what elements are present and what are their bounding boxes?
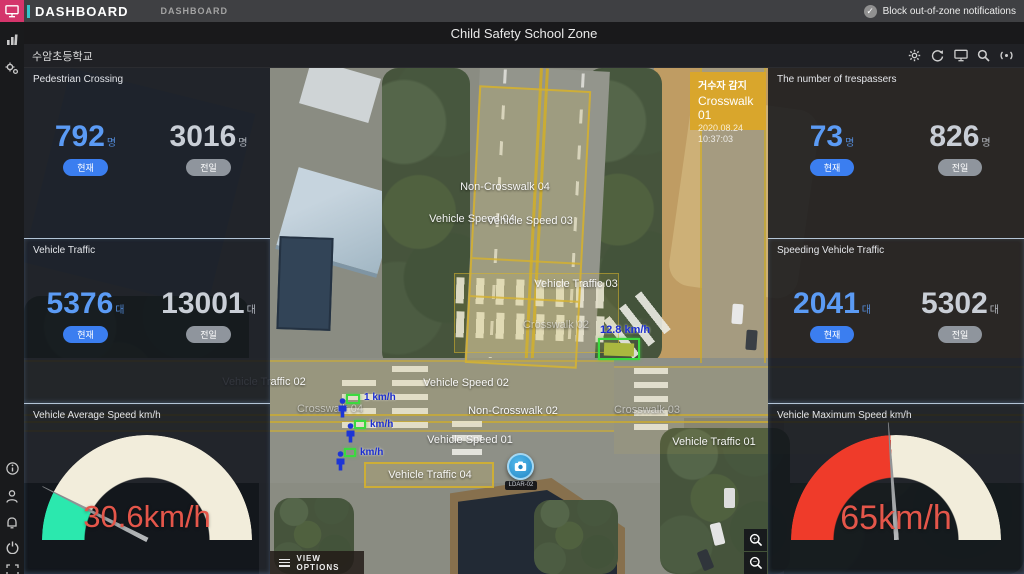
stat-value: 5302대 — [921, 288, 999, 320]
section-title: Vehicle Average Speed km/h — [24, 410, 270, 421]
zone-label: Vehicle Traffic 04 — [388, 469, 472, 481]
map-building — [299, 68, 381, 123]
stat-current: 2041대 현재 — [768, 288, 896, 343]
stat-previous: 13001대 전일 — [147, 288, 270, 343]
alert-time: 10:37:03 — [698, 134, 766, 144]
monitor-icon[interactable] — [0, 0, 24, 22]
menu-icon — [279, 559, 290, 567]
vehicle-detection-box — [598, 338, 640, 360]
camera-marker[interactable] — [507, 453, 534, 480]
previous-badge: 전일 — [186, 159, 231, 176]
check-icon[interactable]: ✓ — [864, 5, 877, 18]
gauge-value: 65km/h — [791, 499, 1001, 538]
zone-label: Vehicle Speed 01 — [427, 434, 513, 446]
view-options-button[interactable]: VIEW OPTIONS — [270, 551, 364, 574]
gauge-value: 30.6km/h — [42, 499, 252, 535]
stat-current: 5376대 현재 — [24, 288, 147, 343]
map-building-dark — [276, 236, 333, 331]
block-notifications-toggle[interactable]: ✓ Block out-of-zone notifications — [864, 5, 1016, 18]
bell-icon[interactable] — [0, 512, 24, 532]
stat-value: 3016명 — [170, 121, 248, 153]
speeding-traffic-section: Speeding Vehicle Traffic 2041대 현재 5302대 … — [768, 238, 1024, 403]
gears-icon[interactable] — [0, 58, 24, 78]
stat-value: 826명 — [929, 121, 990, 153]
vehicle-traffic-section: Vehicle Traffic 5376대 현재 13001대 전일 — [24, 238, 270, 403]
section-title: Pedestrian Crossing — [24, 74, 270, 85]
current-badge: 현재 — [63, 159, 108, 176]
stat-previous: 5302대 전일 — [896, 288, 1024, 343]
app-logo: DASHBOARD — [35, 4, 129, 19]
zone-label: Crosswalk 04 — [297, 403, 363, 415]
current-badge: 현재 — [63, 326, 108, 343]
left-stats-panel: Pedestrian Crossing 792명 현재 3016명 전일 Veh… — [24, 68, 270, 574]
stat-value: 792명 — [55, 121, 116, 153]
current-badge: 현재 — [810, 326, 855, 343]
stat-value: 73명 — [810, 121, 855, 153]
camera-label: LDAR-02 — [505, 481, 537, 490]
pedestrian-speed-tag: 1 km/h — [364, 392, 396, 403]
broadcast-icon[interactable] — [999, 48, 1014, 63]
current-badge: 현재 — [810, 159, 855, 176]
pedestrian-icon — [336, 398, 349, 418]
stat-value: 13001대 — [161, 288, 256, 320]
pedestrian-crossing-section: Pedestrian Crossing 792명 현재 3016명 전일 — [24, 68, 270, 238]
alert-zone: Crosswalk 01 — [698, 94, 766, 122]
block-notifications-label: Block out-of-zone notifications — [883, 6, 1016, 17]
car — [745, 330, 757, 351]
max-speed-section: Vehicle Maximum Speed km/h 65km/h — [768, 403, 1024, 574]
previous-badge: 전일 — [186, 326, 231, 343]
stat-previous: 3016명 전일 — [147, 121, 270, 176]
avg-speed-section: Vehicle Average Speed km/h 30.6km/h — [24, 403, 270, 574]
bar-chart-icon[interactable] — [0, 30, 24, 50]
gear-icon[interactable] — [907, 48, 922, 63]
alert-title: 거수자 감지 — [698, 77, 766, 92]
car — [724, 488, 735, 508]
view-options-label: VIEW OPTIONS — [297, 554, 365, 572]
map-viewport[interactable]: Non-Crosswalk 04 Vehicle Speed 04 Vehicl… — [24, 68, 1024, 574]
stat-current: 73명 현재 — [768, 121, 896, 176]
zone-label: Vehicle Speed 03 — [487, 215, 573, 227]
info-icon[interactable] — [0, 458, 24, 478]
car — [731, 304, 743, 325]
trespassers-section: The number of trespassers 73명 현재 826명 전일 — [768, 68, 1024, 238]
vehicle-speed-tag: 12.8 km/h — [600, 324, 650, 336]
accent-bar — [27, 5, 30, 18]
section-title: Vehicle Maximum Speed km/h — [768, 410, 1024, 421]
power-icon[interactable] — [0, 537, 24, 557]
zoom-out-button[interactable]: − — [744, 552, 767, 574]
zoom-in-button[interactable]: + — [744, 529, 767, 551]
zone-label: Crosswalk 03 — [614, 404, 680, 416]
title-bar: Child Safety School Zone — [24, 22, 1024, 44]
resize-icon[interactable] — [0, 560, 24, 574]
stat-value: 5376대 — [47, 288, 125, 320]
previous-badge: 전일 — [938, 326, 983, 343]
previous-badge: 전일 — [938, 159, 983, 176]
pedestrian-icon — [344, 423, 357, 443]
alert-date: 2020.08.24 — [698, 123, 766, 133]
zone-label: Non-Crosswalk 02 — [468, 405, 558, 417]
toolbar — [907, 48, 1014, 63]
page-title: Child Safety School Zone — [451, 26, 598, 41]
section-title: Speeding Vehicle Traffic — [768, 245, 1024, 256]
right-stats-panel: The number of trespassers 73명 현재 826명 전일… — [768, 68, 1024, 574]
refresh-icon[interactable] — [930, 48, 945, 63]
stat-previous: 826명 전일 — [896, 121, 1024, 176]
svg-text:−: − — [752, 559, 756, 566]
search-icon[interactable] — [976, 48, 991, 63]
alert-notification[interactable]: 거수자 감지 Crosswalk 01 2020.08.24 10:37:03 — [690, 72, 766, 130]
tab-dashboard[interactable]: DASHBOARD — [161, 6, 229, 16]
zone-label: Vehicle Traffic 01 — [672, 436, 756, 448]
zone-label: Vehicle Traffic 03 — [534, 278, 618, 290]
monitor-icon[interactable] — [953, 48, 968, 63]
pedestrian-speed-tag: km/h — [360, 447, 383, 458]
pedestrian-icon — [334, 451, 347, 471]
map-trees — [534, 500, 618, 574]
section-title: Vehicle Traffic — [24, 245, 270, 256]
stat-value: 2041대 — [793, 288, 871, 320]
section-title: The number of trespassers — [768, 74, 1024, 85]
svg-text:+: + — [752, 536, 756, 543]
school-name: 수암초등학교 — [32, 48, 93, 64]
zone-label: Non-Crosswalk 04 — [460, 181, 550, 193]
user-icon[interactable] — [0, 486, 24, 506]
zone-label: Vehicle Speed 02 — [423, 377, 509, 389]
top-bar: DASHBOARD DASHBOARD ✓ Block out-of-zone … — [24, 0, 1024, 22]
max-speed-gauge: 65km/h — [791, 435, 1001, 545]
avg-speed-gauge: 30.6km/h — [42, 435, 252, 545]
pedestrian-speed-tag: km/h — [370, 419, 393, 430]
stat-current: 792명 현재 — [24, 121, 147, 176]
zone-label: Crosswalk 02 — [523, 319, 589, 331]
dashboard-page: DASHBOARD DASHBOARD ✓ Block out-of-zone … — [0, 0, 1024, 574]
sidebar — [0, 0, 24, 574]
sub-header: 수암초등학교 — [24, 44, 1024, 68]
